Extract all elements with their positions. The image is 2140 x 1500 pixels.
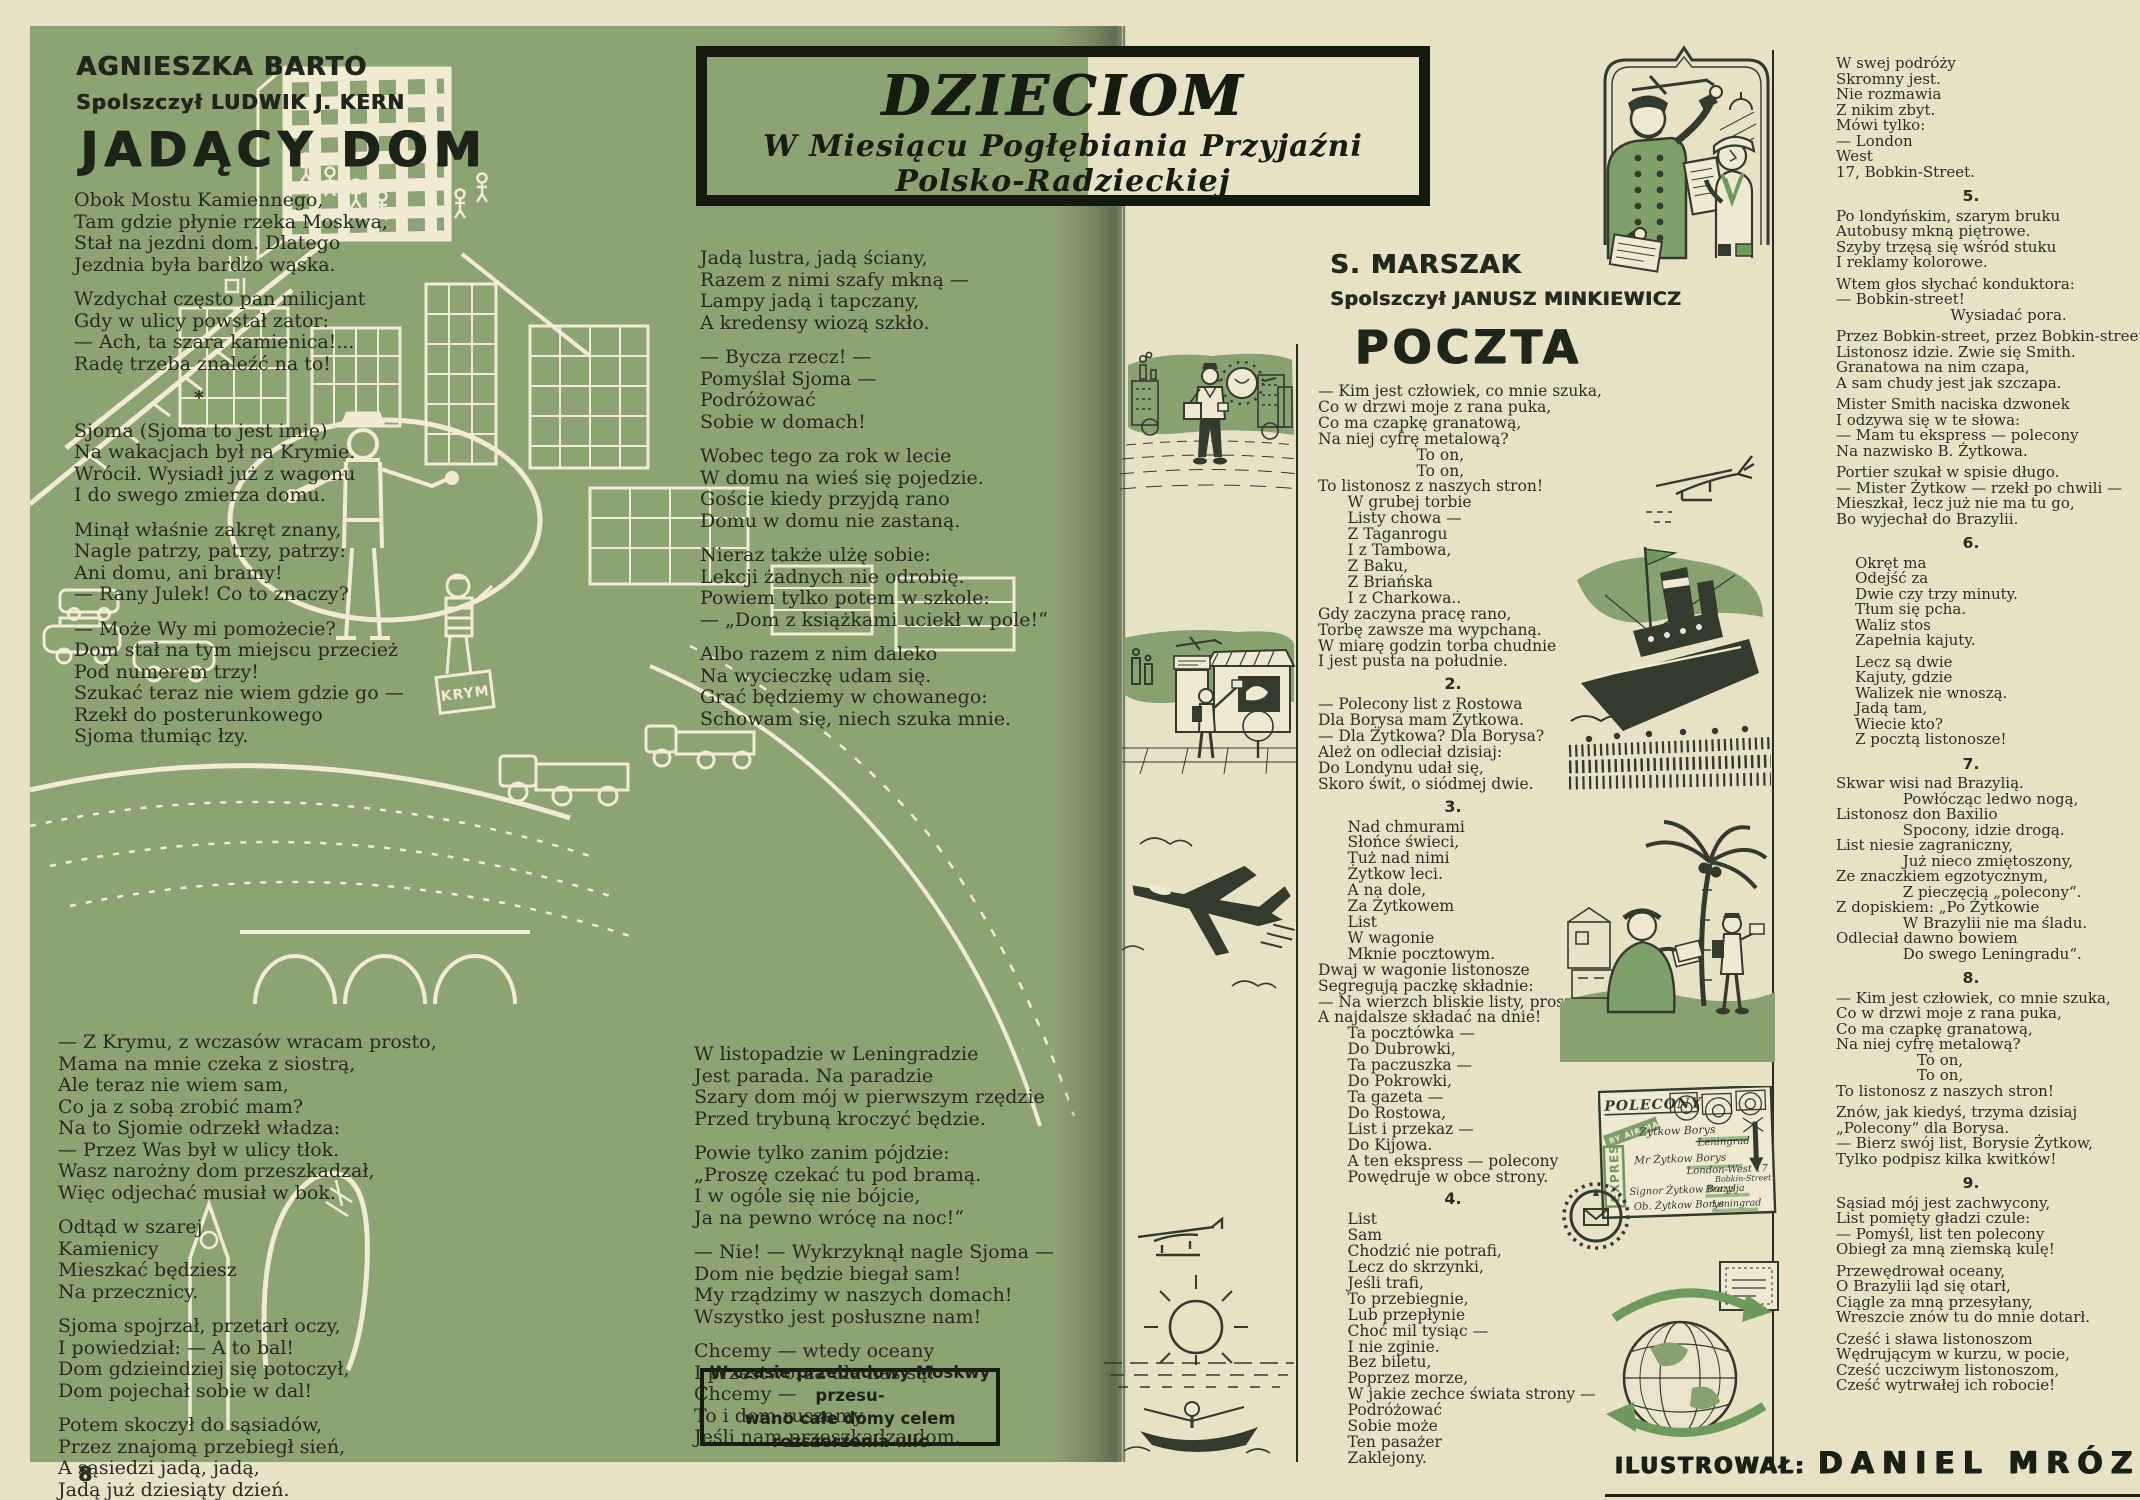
poem-line: My rządzimy w naszych domach! xyxy=(694,1285,1024,1307)
poem-line: Jadą już dziesiąty dzień. xyxy=(58,1480,388,1500)
stanza: W listopadzie w LeningradzieJest parada.… xyxy=(694,1044,1024,1130)
poem-line: Potem skoczył do sąsiadów, xyxy=(58,1415,388,1437)
poem-line: Na nazwisko B. Żytkowa. xyxy=(1836,444,2140,460)
stanza-number: 8. xyxy=(1836,971,2106,987)
poem-line: Zapełnia kajuty. xyxy=(1836,633,2140,649)
stanza: Potem skoczył do sąsiadów,Przez znajomą … xyxy=(58,1415,388,1500)
bottom-rule xyxy=(1605,1494,2140,1497)
poem-line: Dom pojechał sobie w dal! xyxy=(58,1381,388,1403)
author-right: S. MARSZAK xyxy=(1330,250,1522,280)
stanza: Sjoma spojrzał, przetarł oczy,I powiedzi… xyxy=(58,1316,388,1402)
stanza-separator: * xyxy=(74,388,324,410)
small-plane-illustration xyxy=(1640,428,1770,538)
poem-line: — London xyxy=(1836,134,2140,150)
poem-line: Wasz narożny dom przeszkadzał, xyxy=(58,1161,388,1183)
poem-line: Powie tylko zanim pójdzie: xyxy=(694,1143,1024,1165)
poem-line: 17, Bobkin-Street. xyxy=(1836,165,2140,181)
poem-line: Na wycieczkę udam się. xyxy=(700,666,1030,688)
poem-line: Przez znajomą przebiegł sień, xyxy=(58,1437,388,1459)
letter-delivery-illustration xyxy=(1118,622,1300,777)
stanza: Sąsiad mój jest zachwycony,List pomięty … xyxy=(1836,1196,2140,1394)
poem-line: Do swego Leningradu“. xyxy=(1836,947,2140,963)
poem-line: Rzekł do posterunkowego xyxy=(74,705,404,727)
poem-line: Sjoma (Sjoma to jest imię) xyxy=(74,421,404,443)
poem-line: — Nie! — Wykrzyknął nagle Sjoma — xyxy=(694,1242,1024,1264)
poem-line: Grać będziemy w chowanego: xyxy=(700,687,1030,709)
poem-line: Dom stał na tym miejscu przecież xyxy=(74,640,404,662)
poem-line: Lekcji żadnych nie odrobię. xyxy=(700,567,1030,589)
steamship-illustration xyxy=(1565,535,1775,800)
poem-line: Na wakacjach był na Krymie. xyxy=(74,442,404,464)
poem-line: Wzdychał często pan milicjant xyxy=(74,289,404,311)
sea-sun-boat-illustration xyxy=(1096,1205,1301,1460)
stanza: Odtąd w szarejKamienicyMieszkać będziesz… xyxy=(58,1217,388,1303)
poem-line: Wszystko jest posłuszne nam! xyxy=(694,1307,1024,1329)
poem-line: Chcemy — wtedy oceany xyxy=(694,1341,1024,1363)
poem-line: Jezdnia była bardzo wąska. xyxy=(74,255,404,277)
poem-line: Sjoma tłumiąc łzy. xyxy=(74,726,404,748)
poem-line: Pod numerem trzy! xyxy=(74,662,404,684)
poem-title-left: JADĄCY DOM xyxy=(80,122,487,178)
stanza: — Kim jest człowiek, co mnie szuka,Co w … xyxy=(1836,991,2140,1168)
right-column: W swej podróżySkromny jest.Nie rozmawiaZ… xyxy=(1836,56,2140,1403)
poem-line: Przed trybuną kroczyć będzie. xyxy=(694,1109,1024,1131)
stanza: Albo razem z nim dalekoNa wycieczkę udam… xyxy=(700,644,1030,730)
poem-line: I powiedział: — A to bal! xyxy=(58,1338,388,1360)
banner-subtitle-2: Polsko-Radzieckiej xyxy=(707,164,1419,199)
poem-line: Jadą lustra, jadą ściany, xyxy=(700,248,1030,270)
poem-line: Obiegł za mną ziemską kulę! xyxy=(1836,1242,2140,1258)
poem-line: — Bycza rzecz! — xyxy=(700,347,1030,369)
poem-line: Minął właśnie zakręt znany, xyxy=(74,520,404,542)
stanza: Powie tylko zanim pójdzie:„Proszę czekać… xyxy=(694,1143,1024,1229)
stanza: — Nie! — Wykrzyknął nagle Sjoma —Dom nie… xyxy=(694,1242,1024,1328)
poem-line: Sjoma spojrzał, przetarł oczy, xyxy=(58,1316,388,1338)
poem-line: Wreszcie znów tu do mnie dotarł. xyxy=(1836,1310,2140,1326)
poem-line: Więc odjechać musiał w bok. xyxy=(58,1183,388,1205)
poem-line: — Przez Was był w ulicy tłok. xyxy=(58,1140,388,1162)
illustrator-credit-name: DANIEL MRÓZ xyxy=(1817,1446,2140,1481)
stanza: Sjoma (Sjoma to jest imię)Na wakacjach b… xyxy=(74,421,404,507)
stanza-number: 9. xyxy=(1836,1176,2106,1192)
poem-line: Sobie w domach! xyxy=(700,412,1030,434)
stanza-number: 4. xyxy=(1318,1191,1588,1207)
stanza-number: 3. xyxy=(1318,799,1588,815)
poem-line: Dom nie będzie biegał sam! xyxy=(694,1264,1024,1286)
banner-title: DZIECIOM xyxy=(707,63,1419,129)
illustrator-credit: ILUSTROWAŁ:DANIEL MRÓZ xyxy=(1500,1446,2140,1481)
envelope-addr1: Żytkow Borys xyxy=(1638,1122,1716,1139)
poem-line: I reklamy kolorowe. xyxy=(1836,255,2140,271)
postal-emblem-icon xyxy=(1556,1176,1636,1256)
poem-line: W listopadzie w Leningradzie xyxy=(694,1044,1024,1066)
poem-line: Razem z nimi szafy mkną — xyxy=(700,270,1030,292)
poem-column-2-top: Jadą lustra, jadą ściany,Razem z nimi sz… xyxy=(700,248,1030,743)
poem-line: Stał na jezdni dom. Dlatego xyxy=(74,233,404,255)
poem-line: — Może Wy mi pomożecie? xyxy=(74,619,404,641)
poem-line: Szukać teraz nie wiem gdzie go — xyxy=(74,683,404,705)
poem-line: Radę trzeba znaleźć na to! xyxy=(74,354,404,376)
footnote-box: W czasie przebudowy Moskwy przesu- wano … xyxy=(700,1368,1000,1446)
poem-line: To listonosz z naszych stron! xyxy=(1836,1084,2140,1100)
author-left: AGNIESZKA BARTO xyxy=(76,52,367,82)
poem-line: A sąsiedzi jadą, jadą, xyxy=(58,1458,388,1480)
stanza: Wobec tego za rok w lecieW domu na wieś … xyxy=(700,446,1030,532)
stanza: Nieraz także ulżę sobie:Lekcji żadnych n… xyxy=(700,545,1030,631)
poem-line: Goście kiedy przyjdą rano xyxy=(700,489,1030,511)
jet-plane-illustration xyxy=(1112,800,1302,1015)
poem-line: Lampy jadą i tapczany, xyxy=(700,291,1030,313)
illustrator-credit-label: ILUSTROWAŁ: xyxy=(1614,1454,1805,1479)
stanza: Okręt ma Odejść za Dwie czy trzy minuty.… xyxy=(1836,556,2140,748)
envelope-addr3-place: Brazylja xyxy=(1704,1183,1745,1195)
poem-line: A kredensy wiozą szkło. xyxy=(700,313,1030,335)
poem-title-right: POCZTA xyxy=(1318,320,1618,374)
stanza: Po londyńskim, szarym brukuAutobusy mkną… xyxy=(1836,209,2140,528)
poem-line: Wysiadać pora. xyxy=(1836,308,2140,324)
poem-line: Cześć wytrwałej ich robocie! xyxy=(1836,1378,2140,1394)
poem-line: Wrócił. Wysiadł już z wagonu xyxy=(74,464,404,486)
translator-left: Spolszczył LUDWIK J. KERN xyxy=(76,90,405,114)
poem-line: Nieraz także ulżę sobie: xyxy=(700,545,1030,567)
poem-line: „Proszę czekać tu pod bramą. xyxy=(694,1165,1024,1187)
poem-column-1-bottom: — Z Krymu, z wczasów wracam prosto,Mama … xyxy=(58,1032,388,1500)
poem-line: Dom gdzieindziej się potoczył, xyxy=(58,1359,388,1381)
poem-column-1-top: Obok Mostu Kamiennego,Tam gdzie płynie r… xyxy=(74,190,404,761)
stanza: Wzdychał często pan milicjantGdy w ulicy… xyxy=(74,289,404,375)
poem-line: Schowam się, niech szuka mnie. xyxy=(700,709,1030,731)
footnote-line-1: W czasie przebudowy Moskwy przesu- xyxy=(704,1361,996,1407)
brazil-postman-illustration xyxy=(1560,800,1775,1062)
poem-line: I do swego zmierza domu. xyxy=(74,485,404,507)
two-postmen-illustration xyxy=(1580,40,1790,310)
stanza-number: 6. xyxy=(1836,536,2106,552)
poem-line: Kamienicy xyxy=(58,1239,388,1261)
poem-line: Na to Sjomie odrzekł władza: xyxy=(58,1118,388,1140)
poem-line: Ja na pewno wrócę na noc!“ xyxy=(694,1208,1024,1230)
poem-line: W domu na wieś się pojedzie. xyxy=(700,468,1030,490)
poem-line: Powiem tylko potem w szkole: xyxy=(700,588,1030,610)
dzieciom-banner: DZIECIOM W Miesiącu Pogłębiania Przyjaźn… xyxy=(696,46,1430,206)
suitcase-label: KRYM xyxy=(440,683,491,705)
poem-line: I w ogóle się nie bójcie, xyxy=(694,1186,1024,1208)
poem-line: Obok Mostu Kamiennego, xyxy=(74,190,404,212)
stanza-number: 7. xyxy=(1836,757,2106,773)
stanza: — Może Wy mi pomożecie?Dom stał na tym m… xyxy=(74,619,404,748)
postman-walking-illustration xyxy=(1120,345,1300,495)
poem-line: — „Dom z książkami uciekł w pole!“ xyxy=(700,610,1030,632)
poem-line: Pomyślał Sjoma — xyxy=(700,369,1030,391)
poem-line: Mama na mnie czeka z siostrą, xyxy=(58,1054,388,1076)
stanza: Minął właśnie zakręt znany,Nagle patrzy,… xyxy=(74,520,404,606)
poem-line: Bo wyjechał do Brazylii. xyxy=(1836,512,2140,528)
poem-line: Albo razem z nim daleko xyxy=(700,644,1030,666)
poem-line: Z pocztą listonosze! xyxy=(1836,732,2140,748)
footnote-line-2: wano całe domy celem rozszerzenia ulic xyxy=(704,1407,996,1453)
magazine-spread: KRYM xyxy=(0,0,2140,1500)
poem-line: Ani domu, ani bramy! xyxy=(74,563,404,585)
poem-line: A sam chudy jest jak szczapa. xyxy=(1836,376,2140,392)
poem-line: — Rany Julek! Co to znaczy? xyxy=(74,584,404,606)
poem-line: Jest parada. Na paradzie xyxy=(694,1066,1024,1088)
poem-line: Gdy w ulicy powstał zator: xyxy=(74,311,404,333)
stanza-number: 5. xyxy=(1836,189,2106,205)
poem-line: — Ach, ta szara kamienica!... xyxy=(74,332,404,354)
poem-line: Wobec tego za rok w lecie xyxy=(700,446,1030,468)
stanza-number: 2. xyxy=(1318,676,1588,692)
poem-line: Nagle patrzy, patrzy, patrzy: xyxy=(74,541,404,563)
poem-line: Tam gdzie płynie rzeka Moskwa, xyxy=(74,212,404,234)
poem-line: — Z Krymu, z wczasów wracam prosto, xyxy=(58,1032,388,1054)
stanza: Skwar wisi nad Brazylią. Powłócząc ledwo… xyxy=(1836,776,2140,962)
poem-line: Szary dom mój w pierwszym rzędzie xyxy=(694,1087,1024,1109)
poem-line: Mieszkać będziesz xyxy=(58,1260,388,1282)
poem-line: Podróżować xyxy=(700,390,1030,412)
poem-line: Co ja z sobą zrobić mam? xyxy=(58,1097,388,1119)
page-number: 8 xyxy=(78,1462,92,1486)
stanza: W swej podróżySkromny jest.Nie rozmawiaZ… xyxy=(1836,56,2140,180)
poem-line: Na przecznicy. xyxy=(58,1282,388,1304)
poem-line: Odtąd w szarej xyxy=(58,1217,388,1239)
envelope-addr1-place: Leningrad xyxy=(1697,1136,1751,1149)
poem-line: Tylko podpisz kilka kwitków! xyxy=(1836,1152,2140,1168)
stanza: — Bycza rzecz! —Pomyślał Sjoma —Podróżow… xyxy=(700,347,1030,433)
globe-illustration xyxy=(1592,1256,1787,1456)
stanza: Jadą lustra, jadą ściany,Razem z nimi sz… xyxy=(700,248,1030,334)
poem-line: Domu w domu nie zastaną. xyxy=(700,511,1030,533)
envelope-addr4-place: Leningrad xyxy=(1711,1197,1762,1210)
stanza: — Z Krymu, z wczasów wracam prosto,Mama … xyxy=(58,1032,388,1204)
banner-subtitle-1: W Miesiącu Pogłębiania Przyjaźni xyxy=(707,129,1419,164)
poem-line: Ale teraz nie wiem sam, xyxy=(58,1075,388,1097)
stanza: Obok Mostu Kamiennego,Tam gdzie płynie r… xyxy=(74,190,404,276)
